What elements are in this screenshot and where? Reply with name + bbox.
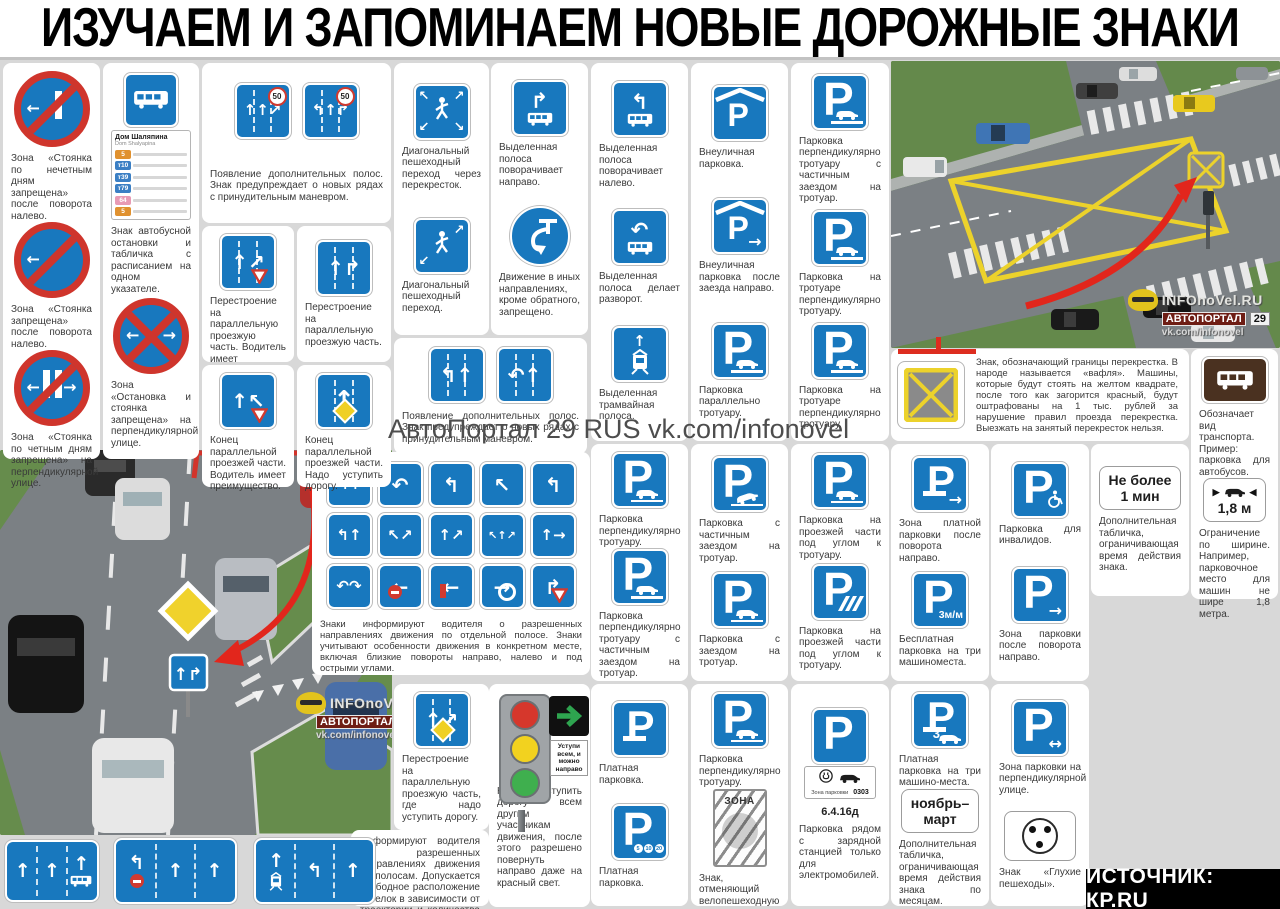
- sign-caption: Парковка для инвалидов.: [994, 524, 1086, 547]
- arrow-glyph: ↰: [631, 92, 649, 113]
- roof-icon: [714, 88, 766, 107]
- parking-sign: Р: [612, 452, 668, 508]
- traffic-light-card: Уступи всем, и можно направо Нужно уступ…: [489, 684, 590, 907]
- bus-icon: [70, 875, 92, 887]
- plate-line: 1 мин: [1109, 488, 1172, 504]
- sign-caption: Диагональный пешеходный переход через пе…: [397, 146, 486, 192]
- svg-text:↑↱: ↑↱: [174, 665, 203, 685]
- merge-yield-sign: ↑↗: [414, 692, 470, 748]
- sign-item: РПарковка для инвалидов.: [994, 462, 1086, 547]
- ev-plug-icon: [819, 769, 833, 788]
- arrow-glyph: ↶↷: [336, 579, 361, 594]
- sign-item: ↑↱Перестроение на параллельную проезжую …: [300, 240, 388, 348]
- sign-caption: Платная парковка на три машино-места.: [894, 754, 986, 789]
- extra-lane-sign: ↰↑: [429, 347, 485, 403]
- sign-item: Р3Платная парковка на три машино-места.: [894, 692, 986, 789]
- parallel-parking-sign: Р: [712, 323, 768, 379]
- sign-caption: Платная парковка.: [594, 763, 685, 786]
- offstreet-parking-sign: Р: [712, 85, 768, 141]
- bus-schedule-plate: Дом ШаляпинаDom Shalyapina5т10т39т79645: [111, 130, 191, 221]
- card-zone-parking-left: ←Зона «Стоянка по нечетным дням запрещен…: [3, 63, 100, 459]
- sign-caption: Дополнительная табличка, ограничивающая …: [1094, 516, 1186, 574]
- card-extra-lanes-1: ↑↑↗50↰↑↱50Появление дополнительных полос…: [202, 63, 391, 223]
- wheelchair-icon: [1047, 490, 1063, 513]
- circle-marker-icon: [498, 583, 516, 601]
- poster-title: ИЗУЧАЕМ И ЗАПОМИНАЕМ НОВЫЕ ДОРОЖНЫЕ ЗНАК…: [41, 0, 1239, 60]
- route-text-line: [133, 153, 187, 156]
- source-bar: ИСТОЧНИК: КР.RU: [1086, 869, 1280, 909]
- traffic-light-pole: [518, 810, 525, 832]
- sign-caption: Зона парковки на перпендикулярной улице.: [994, 762, 1086, 797]
- tram-lane-sign: ↑: [612, 326, 668, 382]
- end-parallel-sign: ↑↖: [220, 373, 276, 429]
- route-row: т79: [115, 184, 187, 193]
- car-icon: [631, 584, 663, 599]
- no-parking-even-days-sign: ←→: [14, 350, 90, 426]
- sign-item: ↑Выделенная трамвайная полоса.: [594, 326, 685, 423]
- car-icon: [731, 358, 763, 373]
- corner-arrow-icon: ↙: [419, 254, 465, 269]
- arrow-glyph: ↰: [443, 475, 460, 495]
- ev-charging-parking-sign: РЗона парковки0303: [804, 708, 876, 799]
- arrow-glyph: ↑↗: [438, 528, 463, 543]
- route-text-line: [133, 187, 187, 190]
- arrow-glyph: ↰: [307, 862, 323, 881]
- car-icon: [831, 109, 863, 124]
- zone-end-sign: ЗОНА: [713, 789, 767, 867]
- car-icon: [731, 728, 763, 743]
- lane-direction-sign: ↑→: [531, 513, 576, 558]
- sign-code-label: 6.4.16д: [821, 806, 859, 818]
- disabled-parking-sign: Р: [1012, 462, 1068, 518]
- plate-line: март: [911, 811, 970, 827]
- bus-lane-turn-sign: ↱: [512, 80, 568, 136]
- parking-sign: Р: [612, 549, 668, 605]
- extra-lane-sign: ↶↑: [497, 347, 553, 403]
- sign-caption: Перестроение на параллельную проезжую ча…: [397, 754, 486, 823]
- sign-caption: Диагональный пешеходный переход.: [397, 280, 486, 315]
- lane-direction-sign: ↶↷: [327, 564, 372, 609]
- offstreet-parking-right-sign: Р→: [712, 198, 768, 254]
- car-icon: [831, 245, 863, 260]
- route-text-line: [133, 176, 187, 179]
- route-row: т39: [115, 173, 187, 182]
- arrow-glyph: ↑→: [540, 528, 565, 543]
- multi-lane-sign-1: ↑↑↑: [5, 840, 99, 902]
- parking-letter: Р: [627, 702, 655, 750]
- sign-item: Р51020Платная парковка.: [594, 804, 685, 889]
- arrow-glyph: ↶: [392, 475, 409, 495]
- card-parking-mid-3: РПарковка на проезжей части под углом к …: [791, 444, 889, 681]
- no-entry-icon: [388, 585, 402, 599]
- bus-type-plate: [1202, 357, 1268, 403]
- sign-caption: Зона парковки после поворота направо.: [994, 629, 1086, 664]
- parking-sign: Р: [812, 74, 868, 130]
- corner-arrow-icon: ↗: [454, 89, 465, 104]
- sign-caption: Дополнительная табличка, ограничивающая …: [894, 839, 986, 908]
- no-entry-icon: [130, 874, 144, 888]
- intersection-photo: INFOnoVel.RU АВТОПОРТАЛ 29 vk.com/infono…: [891, 61, 1280, 348]
- corner-arrow-icon: ↘: [454, 120, 465, 135]
- watermark-region: 29: [1250, 312, 1270, 326]
- parking-letter-sign: Р: [812, 708, 868, 764]
- lane-column: ↑: [333, 844, 371, 898]
- arrow-glyph: ↰: [129, 854, 145, 873]
- waffle-explanation-card: Знак, обозначающий границы перекрестка. …: [891, 349, 1189, 441]
- arrow-glyph: ↑: [268, 852, 284, 871]
- direction-arrow: →: [949, 490, 962, 509]
- sign-row: ↑↑↗50↰↑↱50: [235, 83, 359, 139]
- car-icon: [831, 489, 863, 504]
- watermark-logo-icon: [296, 692, 326, 714]
- card-merge-priority: ↑↗Перестроение на параллельную проезжую …: [202, 226, 294, 362]
- sign-caption: Движение в иных направлениях, кроме обра…: [494, 272, 585, 318]
- sign-caption: Знак «Глухие пешеходы».: [994, 867, 1086, 890]
- width-value: 1,8 м: [1213, 500, 1257, 516]
- sign-item: Не более1 минДополнительная табличка, ог…: [1094, 466, 1186, 574]
- parking-zone-right-sign: Р→: [1012, 567, 1068, 623]
- card-parking-mid-1: РПарковка перпендикулярно тротуару.РПарк…: [591, 444, 688, 681]
- card-zona-cancel: РПарковка перпендикулярно тротуару.ЗОНАЗ…: [691, 684, 788, 906]
- parking-sign: Р: [712, 456, 768, 512]
- lane-direction-sign: ↱: [531, 564, 576, 609]
- sign-caption: Парковка рядом с зарядной станцией тольк…: [794, 824, 886, 882]
- three-places-label: 3м/м: [939, 609, 963, 621]
- plate-line: Не более: [1109, 472, 1172, 488]
- bus-icon: [627, 113, 653, 127]
- yellow-light: [510, 734, 540, 764]
- coin: 5: [634, 844, 643, 853]
- bus-lane-turn-sign: ↰: [612, 81, 668, 137]
- stop-name-latin: Dom Shalyapina: [115, 141, 187, 147]
- sign-item: ↑↖Конец параллельной проезжей части. Вод…: [205, 373, 291, 493]
- no-parking-odd-days-sign: ←: [14, 71, 90, 147]
- watermark-brand: АВТОПОРТАЛ: [316, 715, 392, 729]
- lane-direction-sign: ↖↑↗: [480, 513, 525, 558]
- sign-caption: Парковка перпендикулярно тротуару с част…: [594, 611, 685, 680]
- sign-caption: Знак, отменяющий велопешеходную зону.: [694, 873, 785, 909]
- coin: 10: [644, 844, 653, 853]
- sign-item: ←→Зона «Остановка и стоянка запрещена» н…: [106, 298, 196, 449]
- bus-icon: [627, 241, 653, 255]
- route-badge: т39: [115, 173, 131, 182]
- roof-icon: [714, 201, 766, 220]
- route-text-line: [133, 164, 187, 167]
- watermark-vk: vk.com/infonovel: [316, 730, 392, 741]
- plate-line: ноябрь–: [911, 795, 970, 811]
- diagonal-crossing-sign: ↗↙: [414, 218, 470, 274]
- arrow-glyph: ↶: [631, 220, 649, 241]
- sign-item: РПарковка на тротуаре перпендикулярно тр…: [794, 210, 886, 318]
- card-end-parallel-priority: ↑↖Конец параллельной проезжей части. Вод…: [202, 365, 294, 487]
- green-light: [510, 768, 540, 798]
- multi-lane-sign-2: ↰↑↑: [114, 838, 237, 904]
- width-limit-plate: ▶◀1,8 м: [1203, 478, 1267, 522]
- car-icon: [838, 770, 862, 788]
- direction-arrow: →: [1049, 601, 1062, 620]
- sign-item: Обозначает вид транспорта. Пример: парко…: [1194, 357, 1275, 478]
- card-disabled-parking: РПарковка для инвалидов.Р→Зона парковки …: [991, 444, 1089, 681]
- waffle-description: Знак, обозначающий границы перекрестка. …: [971, 357, 1183, 434]
- sign-item: Р→Внеуличная парковка после заезда напра…: [694, 198, 785, 295]
- red-connector: [898, 349, 976, 354]
- card-bus-stop: Дом ШаляпинаDom Shalyapina5т10т39т79645З…: [103, 63, 199, 459]
- bus-icon: [124, 73, 178, 127]
- corner-arrow-icon: ↖: [419, 89, 430, 104]
- sign-caption: Знак автобусной остановки и табличка с р…: [106, 226, 196, 295]
- source-label: ИСТОЧНИК: КР.RU: [1086, 865, 1280, 909]
- lane-direction-sign: ↑↗: [429, 513, 474, 558]
- coins-icon: 51020: [634, 844, 664, 853]
- arrow-glyph: ↖: [494, 475, 511, 495]
- yield-triangle-icon: [251, 408, 268, 423]
- left-arrow-icon: ←: [27, 378, 40, 397]
- lane-direction-sign: ↰: [531, 462, 576, 507]
- photo-watermark: INFOnoVel.RU АВТОПОРТАЛ 29 vk.com/infono…: [1128, 289, 1270, 338]
- card-ev-parking: РЗона парковки03036.4.16дПарковка рядом …: [791, 684, 889, 906]
- lane-column: ↑: [194, 844, 233, 898]
- sign-item: Р→Зона платной парковки после поворота н…: [894, 456, 986, 564]
- arrow-glyph: ↑↱: [327, 258, 361, 278]
- sign-item: Р↔Зона парковки на перпендикулярной улиц…: [994, 700, 1086, 797]
- route-row: 64: [115, 196, 187, 205]
- parking-angle-sign: Р: [812, 564, 868, 620]
- route-row: т10: [115, 161, 187, 170]
- sign-item: РПарковка с заездом на тротуар.: [694, 572, 785, 669]
- card-diag-crossings: ↖↗↙↘Диагональный пешеходный переход чере…: [394, 63, 489, 335]
- arrow-glyph: ↑: [15, 862, 31, 881]
- sign-caption: Платная парковка.: [594, 866, 685, 889]
- sign-item: РПарковка на проезжей части под углом к …: [794, 564, 886, 672]
- sign-item: Дом ШаляпинаDom Shalyapina5т10т39т79645З…: [106, 73, 196, 296]
- mandatory-uturn-sign: [510, 206, 570, 266]
- lane-column: ↑: [66, 846, 95, 896]
- card-bus-lane-left: ↰Выделенная полоса поворачивает налево.↶…: [591, 63, 688, 441]
- stop-name: Дом Шаляпина: [115, 134, 187, 141]
- sign-item: ←→Зона «Стоянка по четным дням запрещена…: [6, 350, 97, 490]
- arrow-glyph: ↑: [168, 862, 184, 881]
- sign-caption: Выделенная полоса делает разворот.: [594, 271, 685, 306]
- zona-label: ЗОНА: [724, 796, 754, 807]
- sign-item: Движение в иных направлениях, кроме обра…: [494, 206, 585, 318]
- speed-50-badge: 50: [268, 87, 287, 106]
- sign-caption: Парковка перпендикулярно тротуару.: [594, 514, 685, 549]
- no-parking-sign: ←: [14, 222, 90, 298]
- sign-item: РПарковка перпендикулярно тротуару с час…: [594, 549, 685, 680]
- card-perp-street: Р↔Зона парковки на перпендикулярной улиц…: [991, 684, 1089, 906]
- arrow-glyph: ↑: [633, 334, 646, 349]
- multi-lane-sign-3: ↑↰↑: [254, 838, 375, 904]
- sign-item: ↖↗↙↘Диагональный пешеходный переход чере…: [397, 84, 486, 192]
- lane-column: ↑: [36, 846, 65, 896]
- months-plate: ноябрь–март: [901, 789, 980, 833]
- ruble-crossbar: [623, 736, 646, 741]
- card-paid-3places: Р3Платная парковка на три машино-места.н…: [891, 684, 989, 906]
- sign-item: РПарковка с частичным заездом на тротуар…: [694, 456, 785, 564]
- card-bus-lane-right: ↱Выделенная полоса поворачивает направо.…: [491, 63, 588, 335]
- card-merge-yield-diamond: ↑↗Перестроение на параллельную проезжую …: [394, 684, 489, 830]
- yield-plate: Уступи всем, и можно направо: [550, 740, 588, 776]
- lane-direction-sign: ←: [378, 564, 423, 609]
- lane-column: ↰: [294, 844, 332, 898]
- route-row: 5: [115, 150, 187, 159]
- diagonal-crossing-sign: ↖↗↙↘: [414, 84, 470, 140]
- route-badge: 64: [115, 196, 131, 205]
- sign-caption: Выделенная полоса поворачивает налево.: [594, 143, 685, 189]
- sign-caption: Конец параллельной проезжей части. Надо …: [300, 435, 388, 493]
- yield-triangle-icon: [551, 588, 568, 603]
- sign-caption: Ограничение по ширине. Например, парково…: [1194, 528, 1275, 620]
- width-limit-icons: ▶◀: [1213, 484, 1257, 500]
- ev-plate-text: Зона парковки0303: [811, 789, 869, 796]
- sign-caption: Внеуличная парковка.: [694, 147, 785, 170]
- sign-caption: Зона «Стоянка по нечетным дням запрещена…: [6, 153, 97, 222]
- cluster-description: Знаки информируют водителя о разрешенных…: [315, 619, 587, 674]
- sign-item: Знак «Глухие пешеходы».: [994, 811, 1086, 890]
- time-limit-plate: Не более1 мин: [1099, 466, 1182, 510]
- sign-item: ↱Выделенная полоса поворачивает направо.: [494, 80, 585, 188]
- car-icon: [831, 358, 863, 373]
- deaf-pedestrians-sign: [1004, 811, 1076, 861]
- sign-item: РЗона парковки03036.4.16дПарковка рядом …: [794, 708, 886, 882]
- red-light: [510, 700, 540, 730]
- lane-direction-sign: ↖↗: [378, 513, 423, 558]
- direction-arrow: →: [748, 232, 761, 251]
- sign-item: ▶◀1,8 мОграничение по ширине. Например, …: [1194, 478, 1275, 620]
- card-vehicle-type: Обозначает вид транспорта. Пример: парко…: [1191, 349, 1278, 599]
- lane-column: ↑: [258, 844, 294, 898]
- ruble-crossbar: [923, 491, 946, 496]
- extra-lane-sign: ↰↑↱50: [303, 83, 359, 139]
- parking-sign: Р: [712, 572, 768, 628]
- yield-triangle-icon: [251, 269, 268, 284]
- route-badge: 5: [115, 150, 131, 159]
- card-parking-mid-2: РПарковка с частичным заездом на тротуар…: [691, 444, 788, 681]
- speed-50-badge: 50: [336, 87, 355, 106]
- sign-item: ←Зона «Стоянка запрещена» после поворота…: [6, 222, 97, 350]
- card-sidewalk-parking: РПарковка перпендикулярно тротуару с час…: [791, 63, 889, 441]
- merge-parallel-sign: ↑↱: [316, 240, 372, 296]
- lane-direction-sign: ↖: [480, 462, 525, 507]
- sign-item: ЗОНАЗнак, отменяющий велопешеходную зону…: [694, 789, 785, 909]
- road-signs-infographic: ИЗУЧАЕМ И ЗАПОМИНАЕМ НОВЫЕ ДОРОЖНЫЕ ЗНАК…: [0, 0, 1280, 909]
- card-paid-parking: РПлатная парковка.Р51020Платная парковка…: [591, 684, 688, 906]
- paid-parking-sign: Р: [612, 701, 668, 757]
- waffle-junction-sign: [897, 361, 965, 429]
- left-arrow-icon: ←: [27, 99, 40, 118]
- sign-caption: Парковка на тротуаре перпендикулярно тро…: [794, 272, 886, 318]
- car-icon: [731, 608, 763, 623]
- paid-parking-3-sign: Р3: [912, 692, 968, 748]
- sign-caption: Парковка с частичным заездом на тротуар.: [694, 518, 785, 564]
- sign-item: РПлатная парковка.: [594, 701, 685, 786]
- end-parallel-sign: ↑: [316, 373, 372, 429]
- car-icon: [937, 733, 963, 744]
- watermark-brand: АВТОПОРТАЛ: [1162, 312, 1246, 326]
- watermark-site: INFOnoVel.RU: [330, 695, 392, 711]
- lane-column: ↑: [155, 844, 194, 898]
- arrow-glyph: ↰↑: [440, 365, 474, 385]
- sign-item: ↰Выделенная полоса поворачивает налево.: [594, 81, 685, 189]
- sign-caption: Парковка на проезжей части под углом к т…: [794, 626, 886, 672]
- direction-arrow: ↔: [1049, 734, 1062, 753]
- left-arrow-icon: ←: [27, 250, 40, 269]
- sign-caption: Бесплатная парковка на три машиноместа.: [894, 634, 986, 669]
- watermark-site: INFOnoVel.RU: [1162, 292, 1263, 308]
- sign-caption: Выделенная полоса поворачивает направо.: [494, 142, 585, 188]
- green-arrow-plate: [549, 696, 589, 736]
- sign-caption: Обозначает вид транспорта. Пример: парко…: [1194, 409, 1275, 478]
- sign-caption: Парковка с заездом на тротуар.: [694, 634, 785, 669]
- arrow-glyph: ↑: [207, 862, 223, 881]
- merge-parallel-sign: ↑↗: [220, 234, 276, 290]
- tram-icon: [268, 872, 284, 891]
- sign-caption: Парковка перпендикулярно тротуару с част…: [794, 136, 886, 205]
- arrow-glyph: ↰↑: [336, 528, 361, 543]
- arrow-glyph: ↑: [345, 862, 361, 881]
- traffic-light-body: [499, 694, 551, 804]
- sign-caption: Внеуличная парковка после заезда направо…: [694, 260, 785, 295]
- sign-item: ↶Выделенная полоса делает разворот.: [594, 209, 685, 306]
- arrow-glyph: ↑: [44, 862, 60, 881]
- green-right-arrow-icon: [554, 701, 584, 731]
- card-offstreet-parking: РВнеуличная парковка.Р→Внеуличная парков…: [691, 63, 788, 441]
- sign-item: РПарковка на проезжей части под углом к …: [794, 453, 886, 561]
- free-parking-sign: Р3м/м: [912, 572, 968, 628]
- route-badge: 5: [115, 207, 131, 216]
- card-paid-zone: Р→Зона платной парковки после поворота н…: [891, 444, 989, 681]
- sign-item: ↑↗Перестроение на параллельную проезжую …: [397, 692, 486, 823]
- bus-icon: [527, 112, 553, 126]
- parking-sign: Р: [712, 692, 768, 748]
- extra-lane-sign: ↑↑↗50: [235, 83, 291, 139]
- card-time-plate: Не более1 минДополнительная табличка, ог…: [1091, 444, 1189, 596]
- parking-sign: Р: [812, 210, 868, 266]
- sign-row: ↰↑↶↑: [429, 347, 553, 403]
- lane-direction-sign: ↰: [429, 462, 474, 507]
- sign-item: РПарковка перпендикулярно тротуару.: [694, 692, 785, 789]
- sign-item: РПарковка перпендикулярно тротуару.: [594, 452, 685, 549]
- lane-direction-sign: ↰↑: [327, 513, 372, 558]
- sign-caption: Перестроение на параллельную проезжую ча…: [300, 302, 388, 348]
- poster-title-bar: ИЗУЧАЕМ И ЗАПОМИНАЕМ НОВЫЕ ДОРОЖНЫЕ ЗНАК…: [0, 0, 1280, 60]
- sign-caption: Парковка на проезжей части под углом к т…: [794, 515, 886, 561]
- route-text-line: [133, 210, 187, 213]
- sign-item: РПарковка параллельно тротуару.: [694, 323, 785, 420]
- parking-sign: Р: [812, 453, 868, 509]
- parking-zone-perpendicular-sign: Р↔: [1012, 700, 1068, 756]
- parking-letter: Р: [823, 706, 854, 760]
- paid-parking-sign: Р51020: [612, 804, 668, 860]
- paid-parking-zone-sign: Р→: [912, 456, 968, 512]
- bus-stop-sign: Дом ШаляпинаDom Shalyapina5т10т39т79645: [111, 73, 191, 221]
- center-watermark: АвтоПортал 29 RUS vk.com/infonovel: [388, 414, 849, 445]
- card-merge-plain: ↑↱Перестроение на параллельную проезжую …: [297, 226, 391, 362]
- route-badge: т79: [115, 184, 131, 193]
- sign-item: РВнеуличная парковка.: [694, 85, 785, 170]
- sign-item: РПарковка перпендикулярно тротуару с час…: [794, 74, 886, 205]
- sign-item: ←Зона «Стоянка по нечетным дням запрещен…: [6, 71, 97, 222]
- car-icon: [731, 492, 763, 507]
- sign-item: ↑↗Перестроение на параллельную проезжую …: [205, 234, 291, 377]
- sign-caption: Конец параллельной проезжей части. Водит…: [205, 435, 291, 493]
- stop-bar-icon: [440, 584, 446, 598]
- arrow-glyph: ↰: [545, 475, 562, 495]
- traffic-light: Уступи всем, и можно направо: [492, 692, 587, 780]
- lane-column: ↰: [118, 844, 155, 898]
- watermark-logo-icon: [1128, 289, 1158, 311]
- arrow-glyph: ↱: [531, 91, 549, 112]
